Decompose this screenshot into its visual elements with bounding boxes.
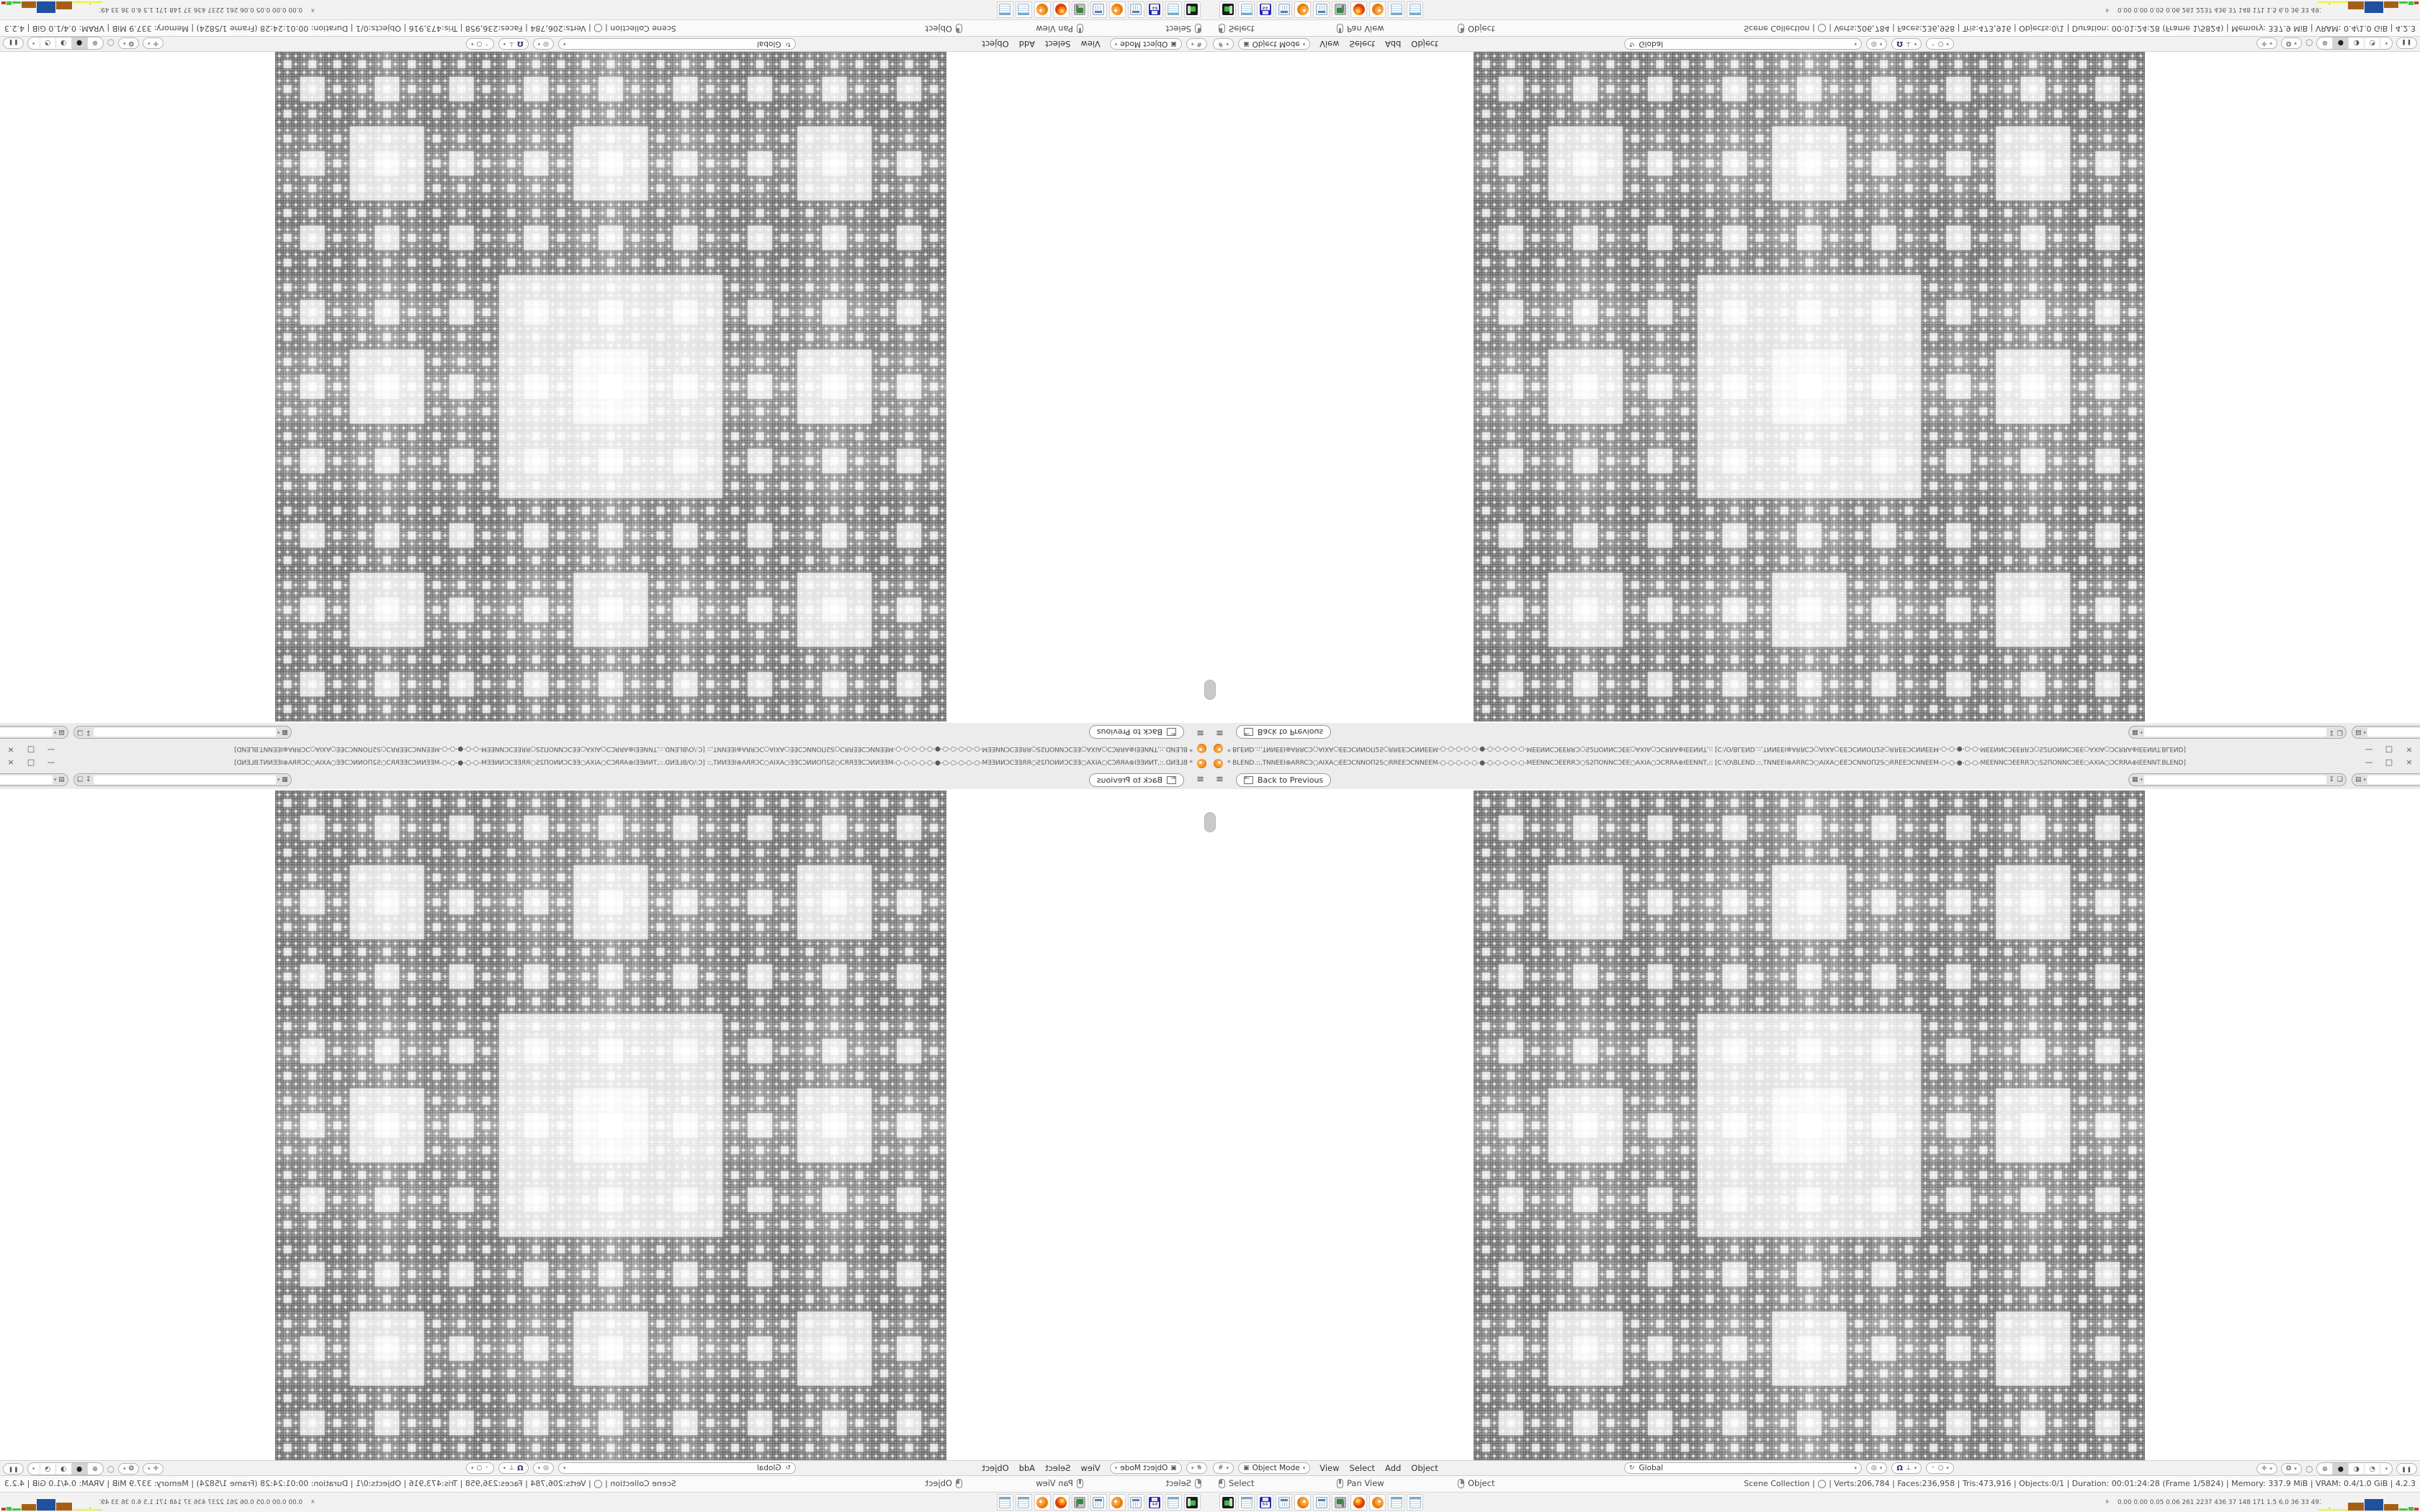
- scene-name-field[interactable]: [2144, 775, 2326, 784]
- close-button[interactable]: ×: [2404, 757, 2414, 767]
- back-to-previous-button[interactable]: ← Back to Previous: [1236, 773, 1331, 787]
- blender-icon: [1372, 4, 1384, 16]
- proportional-circle-icon: ○: [477, 1464, 483, 1472]
- proportional-circle-icon: ○: [477, 40, 483, 48]
- taskbar-icon-notepad-1[interactable]: [1238, 1, 1255, 18]
- taskbar-icon-blender-1[interactable]: [1109, 1, 1126, 18]
- viewport-render-canvas[interactable]: [275, 791, 946, 1460]
- chevron-down-icon[interactable]: ▾: [54, 729, 57, 735]
- monitor-icon: [1335, 1497, 1346, 1508]
- orientation-label: Global: [1639, 1464, 1664, 1472]
- menu-select[interactable]: Select: [1345, 39, 1380, 49]
- shading-mode-1-icon[interactable]: ●: [2333, 1463, 2349, 1475]
- mouse-hint-pan-view: Pan View: [1036, 24, 1083, 34]
- taskbar-icon-notepad-2[interactable]: [1388, 1, 1404, 18]
- minimize-button[interactable]: —: [2364, 745, 2374, 755]
- graph-bar: [2384, 1, 2398, 8]
- taskbar-icon-calculator-2[interactable]: [1313, 1, 1330, 18]
- pin-icon[interactable]: ↧: [85, 729, 92, 736]
- taskbar-icon-notepad-1[interactable]: [1165, 1494, 1182, 1511]
- menu-select[interactable]: Select: [1040, 39, 1075, 49]
- taskbar-icon-capture-monitor[interactable]: [1072, 1, 1088, 18]
- taskbar-icon-calculator-1[interactable]: [1276, 1, 1292, 18]
- maximize-button[interactable]: □: [26, 745, 36, 755]
- mode-label: Object Mode: [1120, 40, 1168, 48]
- maximize-button[interactable]: □: [2384, 757, 2394, 767]
- show-overlays-dropdown[interactable]: ❂▾: [2281, 37, 2302, 49]
- menu-hamburger-icon[interactable]: ≡: [1216, 774, 1224, 785]
- editor-type-button[interactable]: #▾: [1186, 1462, 1207, 1474]
- pivot-point-dropdown[interactable]: ◎▾: [1866, 1462, 1887, 1474]
- graph-bar: [73, 1509, 89, 1511]
- taskbar-icon-calculator-1[interactable]: [1276, 1494, 1292, 1511]
- scene-name-field[interactable]: [2144, 728, 2326, 737]
- graph-bar: [2408, 1507, 2414, 1511]
- transform-orientation-dropdown[interactable]: ↻Global▾: [1624, 38, 1862, 50]
- graph-bar: [2365, 1, 2383, 13]
- chevron-down-icon[interactable]: ▾: [28, 1463, 40, 1475]
- magnet-icon[interactable]: Ω: [517, 1464, 524, 1472]
- hardware-monitor-graph: [1, 1, 102, 18]
- graph-bar: [2414, 1508, 2419, 1511]
- chevron-down-icon: ▾: [1191, 1465, 1194, 1471]
- notepad-icon: [1000, 1497, 1011, 1508]
- view-layer-selector[interactable]: ▤ ▾ ❏: [2352, 726, 2420, 739]
- taskbar-icon-disk-emulator[interactable]: [1184, 1494, 1201, 1511]
- scene-name-field[interactable]: [94, 775, 276, 784]
- show-gizmo-dropdown[interactable]: ✛▾: [2257, 37, 2277, 49]
- scene-icon: ▦: [2131, 729, 2139, 736]
- menu-hamburger-icon[interactable]: ≡: [1196, 727, 1204, 738]
- sensor-readout: 0.00 0.00 0.05 0.06 261 2237 436 37 148 …: [99, 1499, 302, 1506]
- chevron-down-icon: ▾: [471, 41, 474, 47]
- toolbar-collapse-tab[interactable]: [1204, 812, 1210, 832]
- viewport-menus: ViewSelectAddObject: [977, 1463, 1106, 1473]
- menu-add[interactable]: Add: [1014, 39, 1040, 49]
- taskbar-icon-capture-monitor[interactable]: [1332, 1494, 1348, 1511]
- proportional-editing-control[interactable]: ◦○▾: [466, 1462, 494, 1474]
- notepad-icon: [1410, 1497, 1421, 1508]
- menu-select[interactable]: Select: [1040, 1463, 1075, 1473]
- snap-target-icon: ⊥: [1906, 1464, 1912, 1472]
- taskbar-app-icons: 64: [1219, 1494, 1423, 1511]
- view-layer-name-field[interactable]: [0, 775, 53, 784]
- snap-target-icon: ⊥: [508, 1464, 514, 1472]
- shading-mode-group[interactable]: ⊕●◑◔▾: [2316, 37, 2393, 50]
- 3d-viewport[interactable]: [1210, 52, 2420, 723]
- back-to-previous-label: Back to Previous: [1097, 775, 1162, 785]
- mode-dropdown[interactable]: ▣Object Mode▾: [1238, 38, 1310, 50]
- close-button[interactable]: ×: [6, 745, 16, 755]
- chevron-down-icon: ▾: [1914, 1465, 1917, 1471]
- snap-target-icon: ⊥: [508, 40, 514, 48]
- 3d-viewport[interactable]: [0, 52, 1210, 723]
- graph-bar: [22, 1504, 36, 1511]
- taskbar-icon-capture-monitor[interactable]: [1332, 1, 1348, 18]
- menu-object[interactable]: Object: [1406, 39, 1443, 49]
- middle-mouse-icon: [1077, 24, 1083, 34]
- minimize-button[interactable]: —: [46, 757, 56, 767]
- shading-mode-1-icon[interactable]: ●: [2333, 37, 2349, 49]
- show-gizmo-dropdown[interactable]: ✛▾: [2257, 1463, 2277, 1475]
- snapping-control[interactable]: Ω⊥▾: [1891, 1462, 1922, 1474]
- overlays-icon: ❂: [129, 1465, 135, 1472]
- xray-toggle-icon[interactable]: ○: [2305, 38, 2313, 48]
- taskbar-icon-c64-emulator[interactable]: 64: [1147, 1494, 1163, 1511]
- pause-button[interactable]: ❚❚: [3, 1463, 24, 1475]
- firefox-icon: [1056, 1497, 1067, 1508]
- xray-toggle-icon[interactable]: ○: [107, 1464, 115, 1474]
- 3d-viewport[interactable]: [0, 789, 1210, 1460]
- pivot-point-dropdown[interactable]: ◎▾: [1866, 38, 1887, 50]
- menu-view[interactable]: View: [1075, 39, 1105, 49]
- mode-label: Object Mode: [1252, 1464, 1300, 1472]
- snapping-control[interactable]: Ω⊥▾: [498, 1462, 529, 1474]
- chevron-down-icon[interactable]: ▾: [54, 777, 57, 783]
- chevron-down-icon: ▾: [1854, 1465, 1857, 1471]
- taskbar-icon-notepad-3[interactable]: [1407, 1494, 1423, 1511]
- xray-toggle-icon[interactable]: ○: [2305, 1464, 2313, 1474]
- editor-type-icon: #: [1196, 1464, 1202, 1472]
- mode-dropdown[interactable]: ▣Object Mode▾: [1238, 1462, 1310, 1474]
- back-to-previous-button[interactable]: ← Back to Previous: [1089, 725, 1184, 739]
- scene-selector[interactable]: ▦ ▾ ↧ ❏: [2128, 773, 2347, 786]
- scene-name-field[interactable]: [94, 728, 276, 737]
- chevron-down-icon[interactable]: ▾: [2380, 1463, 2392, 1475]
- taskbar-icon-c64-emulator[interactable]: 64: [1257, 1, 1273, 18]
- mode-label: Object Mode: [1120, 1464, 1168, 1472]
- maximize-button[interactable]: □: [2384, 745, 2394, 755]
- proportional-editing-control[interactable]: ◦○▾: [1926, 1462, 1954, 1474]
- taskbar-icon-calculator-1[interactable]: [1128, 1494, 1144, 1511]
- menu-select[interactable]: Select: [1345, 1463, 1380, 1473]
- sensor-readout: 0.00 0.00 0.05 0.06 261 2237 436 37 148 …: [2117, 6, 2321, 13]
- magnet-icon[interactable]: Ω: [1896, 40, 1903, 48]
- show-overlays-dropdown[interactable]: ❂▾: [118, 37, 139, 49]
- toolbar-collapse-tab[interactable]: [1210, 812, 1216, 832]
- show-hidden-icons-chevron[interactable]: »: [2104, 8, 2112, 12]
- shading-mode-2-icon[interactable]: ◑: [55, 37, 71, 49]
- orientation-label: Global: [757, 1464, 781, 1472]
- editor-type-button[interactable]: #▾: [1213, 1462, 1234, 1474]
- taskbar-icon-notepad-1[interactable]: [1238, 1494, 1255, 1511]
- view-layer-name-field[interactable]: [2367, 728, 2420, 737]
- taskbar-icon-blender-1[interactable]: [1294, 1, 1311, 18]
- transform-orientation-dropdown[interactable]: ↻Global▾: [1624, 1462, 1862, 1474]
- show-gizmo-dropdown[interactable]: ✛▾: [143, 1463, 163, 1475]
- pause-button[interactable]: ❚❚: [3, 37, 24, 49]
- graph-bar: [2399, 1, 2408, 4]
- chevron-down-icon: ▾: [1227, 41, 1229, 47]
- chevron-down-icon[interactable]: ▾: [28, 37, 40, 49]
- blender-logo-icon: [1197, 759, 1206, 768]
- taskbar-icon-c64-emulator[interactable]: 64: [1257, 1494, 1273, 1511]
- blender-logo-icon: [1197, 744, 1206, 753]
- taskbar-icon-calculator-2[interactable]: [1313, 1494, 1330, 1511]
- taskbar-icon-calculator-2[interactable]: [1090, 1, 1107, 18]
- menu-object[interactable]: Object: [977, 1463, 1013, 1473]
- 3d-viewport[interactable]: [1210, 789, 2420, 1460]
- back-to-previous-button[interactable]: ← Back to Previous: [1089, 773, 1184, 787]
- shading-mode-3-icon[interactable]: ◔: [2365, 37, 2380, 49]
- taskbar-icon-notepad-2[interactable]: [1016, 1494, 1032, 1511]
- taskbar-icon-blender-2[interactable]: [1034, 1, 1051, 18]
- taskbar-icon-blender-1[interactable]: [1294, 1494, 1311, 1511]
- scene-stats: Scene Collection | ◯ | Verts:206,784 | F…: [1744, 24, 2416, 33]
- shading-mode-0-icon[interactable]: ⊕: [2317, 37, 2333, 49]
- chevron-down-icon: ▾: [471, 1465, 474, 1471]
- chevron-down-icon: ▾: [1880, 1465, 1883, 1471]
- close-button[interactable]: ×: [2404, 745, 2414, 755]
- menu-add[interactable]: Add: [1380, 1463, 1406, 1473]
- taskbar-icon-blender-1[interactable]: [1109, 1494, 1126, 1511]
- proportional-editing-control[interactable]: ◦○▾: [1926, 38, 1954, 50]
- shading-mode-group[interactable]: ⊕●◑◔▾: [27, 37, 104, 50]
- system-taskbar: 64 » 0.00 0.00 0.05 0.06 261 2237 436 37…: [0, 1492, 1210, 1512]
- shading-mode-2-icon[interactable]: ◑: [2349, 1463, 2365, 1475]
- taskbar-icon-notepad-1[interactable]: [1165, 1, 1182, 18]
- right-mouse-icon: [956, 1479, 962, 1488]
- chevron-down-icon: ▾: [1946, 1465, 1949, 1471]
- scene-icon: ▦: [281, 776, 289, 783]
- chevron-down-icon[interactable]: ▾: [277, 777, 280, 783]
- drive-icon: [1222, 4, 1234, 16]
- blender-icon: [1112, 1497, 1124, 1508]
- graph-bar: [2348, 1503, 2364, 1511]
- editor-type-button[interactable]: #▾: [1213, 38, 1234, 50]
- taskbar-icon-calculator-2[interactable]: [1090, 1494, 1107, 1511]
- view-layer-selector[interactable]: ▤ ▾ ❏: [2352, 773, 2420, 786]
- chevron-down-icon[interactable]: ▾: [2364, 777, 2367, 783]
- window-title: * BLEND.::,TNNEEI⊕ARRCƆ○AIXA○EEƆCNNOΠ2S○…: [1227, 745, 2221, 752]
- taskbar-icon-blender-2[interactable]: [1034, 1494, 1051, 1511]
- shading-mode-3-icon[interactable]: ◔: [2365, 1463, 2380, 1475]
- pin-icon[interactable]: ↧: [2328, 776, 2335, 783]
- pause-button[interactable]: ❚❚: [2396, 1463, 2417, 1475]
- editor-type-icon: #: [1196, 40, 1202, 48]
- screen-back-icon: ←: [1244, 728, 1253, 736]
- back-to-previous-button[interactable]: ← Back to Previous: [1236, 725, 1331, 739]
- calc-icon: [1278, 1497, 1290, 1508]
- show-gizmo-dropdown[interactable]: ✛▾: [143, 37, 163, 49]
- shading-mode-1-icon[interactable]: ●: [71, 37, 87, 49]
- show-hidden-icons-chevron[interactable]: »: [308, 1499, 316, 1503]
- blender-topbar: ≡ ← Back to Previous ▦ ▾ ↧ ❏ ▤ ▾ ❏: [1210, 772, 2420, 790]
- notepad-icon: [1018, 4, 1030, 16]
- snapping-control[interactable]: Ω⊥▾: [498, 38, 529, 50]
- view-layer-icon: ▤: [58, 729, 66, 736]
- screen-back-icon: ←: [1244, 776, 1253, 784]
- chevron-down-icon[interactable]: ▾: [2141, 777, 2143, 783]
- snapping-control[interactable]: Ω⊥▾: [1891, 38, 1922, 50]
- proportional-editing-control[interactable]: ◦○▾: [466, 38, 494, 50]
- window-title-bar: * BLEND.::,TNNEEI⊕ARRCƆ○AIXA○EEƆCNNOΠ2S○…: [0, 740, 1210, 756]
- calc-icon: [1131, 1497, 1142, 1508]
- viewport-render-canvas[interactable]: [1474, 791, 2145, 1460]
- close-button[interactable]: ×: [6, 757, 16, 767]
- middle-mouse-icon: [1077, 1479, 1083, 1488]
- taskbar-icon-notepad-2[interactable]: [1388, 1494, 1404, 1511]
- new-scene-icon[interactable]: ❏: [76, 776, 84, 783]
- status-bar: Select Pan View Object Scene Collection …: [0, 1476, 1210, 1492]
- shading-mode-3-icon[interactable]: ◔: [40, 1463, 55, 1475]
- graph-bar: [2331, 1509, 2347, 1511]
- mode-dropdown[interactable]: ▣Object Mode▾: [1110, 1462, 1182, 1474]
- show-hidden-icons-chevron[interactable]: »: [2104, 1499, 2112, 1503]
- calc-icon: [1278, 4, 1290, 16]
- shading-mode-0-icon[interactable]: ⊕: [87, 1463, 103, 1475]
- chevron-down-icon[interactable]: ▾: [2380, 37, 2392, 49]
- menu-view[interactable]: View: [1314, 1463, 1344, 1473]
- minimize-button[interactable]: —: [2364, 757, 2374, 767]
- overlays-icon: ❂: [2286, 1465, 2292, 1472]
- magnet-icon[interactable]: Ω: [517, 40, 524, 48]
- blender-topbar: ≡ ← Back to Previous ▦ ▾ ↧ ❏ ▤ ▾ ❏: [0, 722, 1210, 740]
- viewport-menus: ViewSelectAddObject: [1314, 39, 1443, 49]
- viewport-render-canvas[interactable]: [275, 52, 946, 721]
- middle-mouse-icon: [1337, 1479, 1343, 1488]
- taskbar-icon-capture-monitor[interactable]: [1072, 1494, 1088, 1511]
- taskbar-icon-disk-emulator[interactable]: [1219, 1, 1236, 18]
- toolbar-collapse-tab[interactable]: [1210, 680, 1216, 700]
- scene-selector[interactable]: ▦ ▾ ↧ ❏: [2128, 726, 2347, 739]
- taskbar-icon-notepad-3[interactable]: [1407, 1, 1423, 18]
- pin-icon[interactable]: ↧: [85, 776, 92, 783]
- notepad-icon: [1168, 1497, 1180, 1508]
- graph-bar: [37, 1499, 55, 1511]
- pause-button[interactable]: ❚❚: [2396, 37, 2417, 49]
- menu-object[interactable]: Object: [1406, 1463, 1443, 1473]
- taskbar-icon-notepad-3[interactable]: [997, 1, 1013, 18]
- graph-bar: [56, 1503, 72, 1511]
- editor-type-button[interactable]: #▾: [1186, 38, 1207, 50]
- menu-add[interactable]: Add: [1014, 1463, 1040, 1473]
- pivot-icon: ◎: [1871, 1464, 1877, 1472]
- menu-hamburger-icon[interactable]: ≡: [1196, 774, 1204, 785]
- taskbar-icon-firefox[interactable]: [1053, 1494, 1070, 1511]
- taskbar-icon-firefox[interactable]: [1350, 1, 1367, 18]
- taskbar-icon-blender-2[interactable]: [1369, 1, 1386, 18]
- shading-mode-2-icon[interactable]: ◑: [2349, 37, 2365, 49]
- graph-bar: [2329, 1, 2331, 5]
- chevron-down-icon: ▾: [503, 1465, 506, 1471]
- gizmo-icon: ✛: [153, 40, 159, 47]
- chevron-down-icon[interactable]: ▾: [277, 729, 280, 735]
- taskbar-app-icons: 64: [1219, 1, 1423, 18]
- taskbar-icon-firefox[interactable]: [1053, 1, 1070, 18]
- viewport-render-canvas[interactable]: [1474, 52, 2145, 721]
- shading-mode-3-icon[interactable]: ◔: [40, 37, 55, 49]
- chevron-down-icon[interactable]: ▾: [2364, 729, 2367, 735]
- left-mouse-icon: [1219, 1479, 1225, 1488]
- pivot-point-dropdown[interactable]: ◎▾: [533, 38, 554, 50]
- maximize-button[interactable]: □: [26, 757, 36, 767]
- pin-icon[interactable]: ↧: [2328, 729, 2335, 736]
- graph-bar: [12, 1508, 21, 1511]
- shading-mode-0-icon[interactable]: ⊕: [2317, 1463, 2333, 1475]
- mode-dropdown[interactable]: ▣Object Mode▾: [1110, 38, 1182, 50]
- taskbar-icon-c64-emulator[interactable]: 64: [1147, 1, 1163, 18]
- show-overlays-dropdown[interactable]: ❂▾: [2281, 1463, 2302, 1475]
- graph-bar: [2414, 1, 2419, 4]
- view-layer-name-field[interactable]: [2367, 775, 2420, 784]
- shading-mode-0-icon[interactable]: ⊕: [87, 37, 103, 49]
- scene-selector[interactable]: ▦ ▾ ↧ ❏: [73, 773, 292, 786]
- new-scene-icon[interactable]: ❏: [2336, 776, 2344, 783]
- toolbar-collapse-tab[interactable]: [1204, 680, 1210, 700]
- viewport-menus: ViewSelectAddObject: [977, 39, 1106, 49]
- graph-bar: [89, 1507, 91, 1511]
- blender-icon: [1372, 1497, 1384, 1508]
- mouse-hint-object: Object: [926, 1478, 962, 1488]
- magnet-icon[interactable]: Ω: [1896, 1464, 1903, 1472]
- transform-orientation-dropdown[interactable]: ↻Global▾: [558, 38, 796, 50]
- view-layer-icon: ▤: [2354, 729, 2362, 736]
- calc-icon: [1093, 4, 1105, 16]
- new-scene-icon[interactable]: ❏: [76, 729, 84, 736]
- xray-toggle-icon[interactable]: ○: [107, 38, 115, 48]
- new-scene-icon[interactable]: ❏: [2336, 729, 2344, 736]
- shading-mode-group[interactable]: ⊕●◑◔▾: [2316, 1462, 2393, 1475]
- editor-type-icon: #: [1218, 40, 1224, 48]
- notepad-icon: [1241, 1497, 1252, 1508]
- view-layer-selector[interactable]: ▤ ▾ ❏: [0, 773, 68, 786]
- graph-bar: [1, 1508, 6, 1511]
- shading-mode-group[interactable]: ⊕●◑◔▾: [27, 1462, 104, 1475]
- back-to-previous-label: Back to Previous: [1097, 727, 1162, 737]
- chevron-down-icon: ▾: [1946, 41, 1949, 47]
- chevron-down-icon[interactable]: ▾: [2141, 729, 2143, 735]
- window-controls: —□×: [2364, 757, 2414, 767]
- shading-mode-2-icon[interactable]: ◑: [55, 1463, 71, 1475]
- graph-bar: [6, 1, 12, 5]
- shading-mode-1-icon[interactable]: ●: [71, 1463, 87, 1475]
- menu-add[interactable]: Add: [1380, 39, 1406, 49]
- view-layer-selector[interactable]: ▤ ▾ ❏: [0, 726, 68, 739]
- window-title-bar: * BLEND.::,TNNEEI⊕ARRCƆ○AIXA○EEƆCNNOΠ2S○…: [1210, 756, 2420, 772]
- show-hidden-icons-chevron[interactable]: »: [308, 8, 316, 12]
- pivot-point-dropdown[interactable]: ◎▾: [533, 1462, 554, 1474]
- menu-hamburger-icon[interactable]: ≡: [1216, 727, 1224, 738]
- transform-orientation-dropdown[interactable]: ↻Global▾: [558, 1462, 796, 1474]
- left-mouse-icon: [1219, 24, 1225, 34]
- notepad-icon: [1000, 4, 1011, 16]
- firefox-icon: [1353, 1497, 1365, 1508]
- minimize-button[interactable]: —: [46, 745, 56, 755]
- menu-view[interactable]: View: [1314, 39, 1344, 49]
- show-overlays-dropdown[interactable]: ❂▾: [118, 1463, 139, 1475]
- floppy-icon: 64: [1260, 1497, 1271, 1508]
- pivot-icon: ◎: [1871, 40, 1877, 48]
- graph-bar: [2331, 1, 2347, 3]
- taskbar-icon-calculator-1[interactable]: [1128, 1, 1144, 18]
- graph-bar: [1, 1, 6, 4]
- view-layer-name-field[interactable]: [0, 728, 53, 737]
- window-controls: —□×: [6, 745, 56, 755]
- taskbar-icon-disk-emulator[interactable]: [1219, 1494, 1236, 1511]
- menu-object[interactable]: Object: [977, 39, 1013, 49]
- scene-selector[interactable]: ▦ ▾ ↧ ❏: [73, 726, 292, 739]
- taskbar-icon-notepad-3[interactable]: [997, 1494, 1013, 1511]
- notepad-icon: [1410, 4, 1421, 16]
- monitor-icon: [1335, 4, 1346, 16]
- taskbar-icon-blender-2[interactable]: [1369, 1494, 1386, 1511]
- taskbar-icon-notepad-2[interactable]: [1016, 1, 1032, 18]
- taskbar-icon-firefox[interactable]: [1350, 1494, 1367, 1511]
- object-mode-icon: ▣: [1243, 1464, 1250, 1472]
- menu-view[interactable]: View: [1075, 1463, 1105, 1473]
- taskbar-icon-disk-emulator[interactable]: [1184, 1, 1201, 18]
